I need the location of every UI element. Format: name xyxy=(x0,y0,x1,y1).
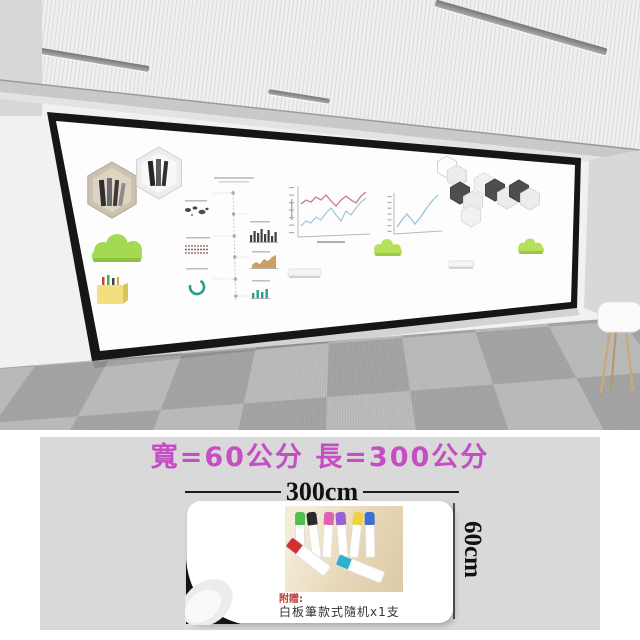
marker-cap xyxy=(324,512,335,526)
marker-pen xyxy=(335,512,348,559)
office-room-photo xyxy=(0,0,640,430)
product-sheet: 附贈: 白板筆款式隨机x1支 xyxy=(187,501,453,623)
marker-cap xyxy=(364,512,374,525)
marker-pen xyxy=(364,512,375,558)
dimension-line xyxy=(185,491,281,493)
marker-pen xyxy=(322,512,335,558)
spec-panel: 寬=60公分 長=300公分 300cm 附贈: 白板筆款式隨机x1支 xyxy=(40,437,600,630)
chair xyxy=(598,302,640,393)
marker-cap xyxy=(352,512,363,526)
marker-cap xyxy=(295,512,305,525)
marker-body xyxy=(349,525,363,559)
gift-prefix: 附贈: xyxy=(279,594,400,606)
gift-description: 白板筆款式隨机x1支 xyxy=(279,606,400,620)
width-dimension-line xyxy=(453,503,455,619)
gift-note: 附贈: 白板筆款式隨机x1支 xyxy=(279,594,400,619)
wall-tray xyxy=(448,261,474,269)
dimension-line xyxy=(363,491,459,493)
product-listing-image: 寬=60公分 長=300公分 300cm 附贈: 白板筆款式隨机x1支 xyxy=(0,0,640,640)
marker-body xyxy=(322,525,334,559)
width-label: 60cm xyxy=(458,521,486,578)
marker-body xyxy=(336,525,348,559)
wall-tray xyxy=(288,269,321,278)
marker-body xyxy=(365,525,376,558)
marker-cap xyxy=(335,512,346,526)
corner-curl xyxy=(185,549,257,625)
room-overlay xyxy=(0,0,640,430)
marker-photo xyxy=(285,506,403,592)
size-title: 寬=60公分 長=300公分 xyxy=(40,442,600,474)
marker-pen xyxy=(349,512,364,559)
